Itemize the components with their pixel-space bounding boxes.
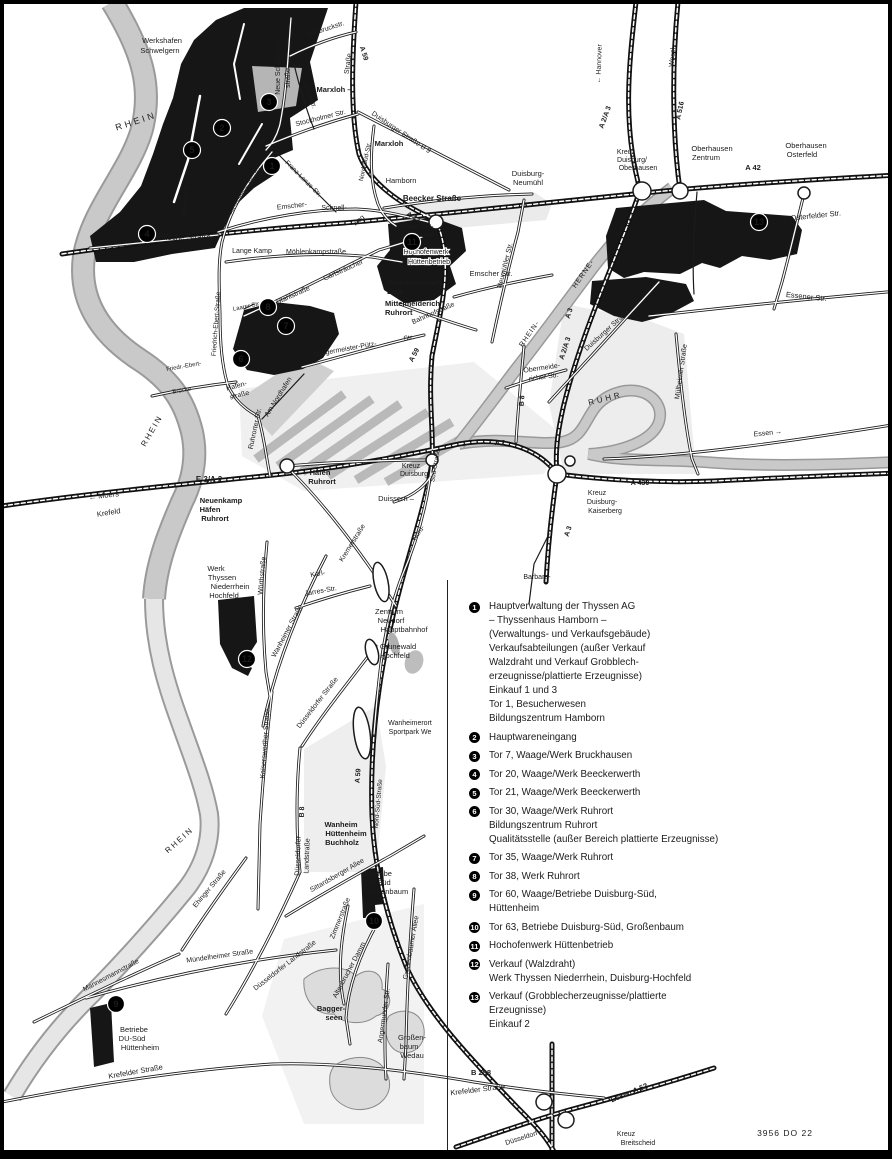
- legend-item-text: Verkauf (Walzdraht)Werk Thyssen Niederrh…: [489, 958, 691, 986]
- legend-line: Hauptwareneingang: [489, 731, 577, 745]
- map-marker-10[interactable]: 10: [366, 913, 383, 930]
- map-label: Wanheimer Straße: [271, 604, 305, 659]
- map-label: Hüttenheim: [325, 829, 367, 838]
- works-huettenheim: [90, 1003, 114, 1067]
- legend-item-text: Tor 7, Waage/Werk Bruckhausen: [489, 749, 632, 763]
- map-label: Thyssen: [208, 573, 236, 582]
- legend-line: Tor 38, Werk Ruhrort: [489, 870, 580, 884]
- map-label: Schnell-: [321, 205, 347, 212]
- map-label: Hoffsche Straße: [153, 233, 211, 242]
- map-label: Gartsträucher: [322, 258, 365, 282]
- legend-line: Hüttenheim: [489, 902, 657, 916]
- map-label: Kreuz: [617, 1131, 636, 1138]
- map-label: Osterfelder Str.: [790, 208, 841, 222]
- map-label: A 42: [745, 163, 761, 172]
- legend-bullet: 8: [469, 871, 480, 882]
- map-label: RHEIN: [163, 825, 195, 855]
- map-label: B 8: [519, 395, 527, 407]
- map-label: Schwelgern: [140, 46, 179, 55]
- legend-item-text: Tor 63, Betriebe Duisburg-Süd, Großenbau…: [489, 921, 684, 935]
- map-marker-7[interactable]: 7: [278, 318, 295, 335]
- legend-line: Einkauf 2: [489, 1018, 667, 1032]
- map-label: Oberhausen: [785, 141, 826, 150]
- legend-line: Tor 1, Besucherwesen: [489, 698, 650, 712]
- map-marker-13[interactable]: 13: [751, 214, 768, 231]
- legend-line: Tor 20, Waage/Werk Beeckerwerth: [489, 768, 640, 782]
- map-label: RHEIN: [139, 413, 164, 448]
- map-marker-4[interactable]: 4: [139, 226, 156, 243]
- map-label: Untermeiderich: [387, 278, 442, 287]
- legend-bullet: 5: [469, 788, 480, 799]
- map-label: Franz-Lenze-Str.: [283, 159, 322, 198]
- map-label: Hamborn: [386, 176, 417, 185]
- legend-line: Walzdraht und Verkauf Grobblech-: [489, 656, 650, 670]
- map-label: Zentrum: [692, 153, 720, 162]
- map-label: Düsseldorf: [505, 1130, 539, 1147]
- legend-line: Qualitätsstelle (außer Bereich plattiert…: [489, 833, 718, 847]
- map-label: A 516: [675, 101, 686, 121]
- map-label: Stahlstraße: [276, 285, 312, 306]
- map-label: Ruhrort: [201, 514, 229, 523]
- map-label: Duisburg/: [617, 157, 647, 164]
- legend-line: – Thyssenhaus Hamborn –: [489, 614, 650, 628]
- map-label: Duissern –: [378, 494, 415, 503]
- map-label: Lange Kamp: [232, 248, 272, 255]
- map-marker-1[interactable]: 1: [264, 158, 281, 175]
- legend-line: Bildungszentrum Ruhrort: [489, 819, 718, 833]
- map-label: 3956 DO 22: [757, 1128, 813, 1138]
- legend-item-8: 8Tor 38, Werk Ruhrort: [469, 870, 884, 884]
- map-label: Wörthstraße: [257, 556, 267, 595]
- map-label: seen: [325, 1013, 343, 1022]
- map-label: A 3: [564, 525, 574, 537]
- map-label: Hüttenbetrieb: [408, 259, 450, 266]
- legend-item-13: 13Verkauf (Grobblecherzeugnisse/plattier…: [469, 990, 884, 1032]
- map-label: Krefelder Straße: [450, 1082, 506, 1098]
- map-label: Niederrhein: [211, 582, 250, 591]
- map-label: A 430: [631, 480, 650, 487]
- map-label: Werk: [207, 564, 225, 573]
- map-label: A 2: [495, 440, 506, 447]
- map-label: Oberhausen: [619, 165, 658, 172]
- map-label: Kreuz: [588, 490, 607, 497]
- legend-bullet: 7: [469, 853, 480, 864]
- map-label: ← Moers: [88, 489, 120, 502]
- map-label: Werkshafen: [142, 36, 182, 45]
- map-label: Wanheimerort: [388, 720, 432, 727]
- map-label: Möhlenkampstraße: [286, 249, 346, 256]
- marker-number: 8: [265, 302, 270, 312]
- map-label: Betriebe: [120, 1025, 148, 1034]
- legend-item-text: Tor 35, Waage/Werk Ruhrort: [489, 851, 613, 865]
- map-label: Marxloh: [375, 139, 404, 148]
- map-label: A 59: [358, 46, 369, 62]
- legend-bullet: 1: [469, 602, 480, 613]
- legend-item-3: 3Tor 7, Waage/Werk Bruckhausen: [469, 749, 884, 763]
- legend-bullet: 10: [469, 922, 480, 933]
- legend-bullet: 11: [469, 941, 480, 952]
- map-label: Duisburg-: [512, 169, 545, 178]
- legend-bullet: 13: [469, 992, 480, 1003]
- works-oberhausen-1: [606, 200, 802, 278]
- legend-bullet: 4: [469, 769, 480, 780]
- map-label: Friedr.-Ebert-: [166, 361, 202, 373]
- map-label: Neudorf: [378, 616, 406, 625]
- map-label: Großenbaum: [364, 887, 408, 896]
- map-label: Nord-: [411, 524, 426, 541]
- legend-line: erzeugnisse/plattierte Erzeugnisse): [489, 670, 650, 684]
- legend-line: Tor 63, Betriebe Duisburg-Süd, Großenbau…: [489, 921, 684, 935]
- map-label: Wedau: [400, 1051, 424, 1060]
- marker-number: 2: [219, 123, 224, 133]
- map-label: weg: [351, 214, 366, 228]
- marker-number: 9: [113, 999, 118, 1009]
- map-label: Ruhrort: [385, 308, 413, 317]
- map-label: Zentrum: [375, 607, 403, 616]
- legend-line: Tor 35, Waage/Werk Ruhrort: [489, 851, 613, 865]
- legend-item-text: Tor 30, Waage/Werk RuhrortBildungszentru…: [489, 805, 718, 847]
- legend-line: (Verwaltungs- und Verkaufsgebäude): [489, 628, 650, 642]
- legend-line: Werk Thyssen Niederrhein, Duisburg-Hochf…: [489, 972, 691, 986]
- legend-line: Hochofenwerk Hüttenbetrieb: [489, 939, 613, 953]
- map-label: Beecker Straße: [403, 194, 462, 203]
- map-label: Kaiserswerther Straße: [260, 709, 272, 779]
- map-label: Krefeld: [96, 506, 121, 519]
- legend-item-1: 1Hauptverwaltung der Thyssen AG– Thyssen…: [469, 600, 884, 726]
- legend-item-text: Tor 38, Werk Ruhrort: [489, 870, 580, 884]
- map-label: Häfen: [200, 505, 221, 514]
- legend-item-7: 7Tor 35, Waage/Werk Ruhrort: [469, 851, 884, 865]
- legend-bullet: 12: [469, 959, 480, 970]
- map-label: Marxloh –: [316, 85, 351, 94]
- map-marker-6[interactable]: 6: [233, 351, 250, 368]
- map-label: Düsseldorfer: [294, 835, 302, 876]
- map-label: DU-Süd: [364, 878, 391, 887]
- legend-item-9: 9Tor 60, Waage/Betriebe Duisburg-Süd,Hüt…: [469, 888, 884, 916]
- legend-item-text: Tor 21, Waage/Werk Beeckerwerth: [489, 786, 640, 800]
- legend-item-12: 12Verkauf (Walzdraht)Werk Thyssen Nieder…: [469, 958, 884, 986]
- map-label: Häfen: [310, 468, 331, 477]
- map-label: A 59: [354, 768, 362, 783]
- legend-line: Bildungszentrum Hamborn: [489, 712, 650, 726]
- map-label: E 3/A 2: [196, 475, 223, 484]
- map-label: Grunewald: [380, 642, 416, 651]
- map-label: Neue Schwelgern-: [275, 37, 282, 95]
- map-marker-9[interactable]: 9: [108, 996, 125, 1013]
- legend-line: Hauptverwaltung der Thyssen AG: [489, 600, 650, 614]
- map-label: B 8: [299, 806, 306, 817]
- marker-number: 1: [269, 161, 274, 171]
- legend-bullet: 6: [469, 806, 480, 817]
- legend-line: Tor 21, Waage/Werk Beeckerwerth: [489, 786, 640, 800]
- map-label: Neuenkamp: [200, 496, 243, 505]
- map-label: Duisburger Straße B 9: [370, 110, 432, 155]
- legend-line: Tor 60, Waage/Betriebe Duisburg-Süd,: [489, 888, 657, 902]
- marker-number: 5: [189, 145, 194, 155]
- map-label: Neumühl: [513, 178, 543, 187]
- map-label: Wanheim: [324, 820, 357, 829]
- legend-item-text: Tor 20, Waage/Werk Beeckerwerth: [489, 768, 640, 782]
- map-marker-5[interactable]: 5: [184, 142, 201, 159]
- map-label: Landstraße: [303, 838, 311, 874]
- legend: 1Hauptverwaltung der Thyssen AG– Thyssen…: [469, 600, 884, 1037]
- legend-line: Erzeugnisse): [489, 1004, 667, 1018]
- map-label: B 288: [471, 1068, 491, 1077]
- map-marker-2[interactable]: 2: [214, 120, 231, 137]
- map-marker-12[interactable]: 12: [239, 651, 256, 668]
- map-label: Sportpark We: [389, 729, 432, 736]
- legend-line: Verkaufsabteilungen (außer Verkauf: [489, 642, 650, 656]
- map-label: Breitscheid: [621, 1140, 656, 1147]
- map-label: Kaiserberg: [588, 508, 622, 515]
- map-label: Hochfeld: [209, 591, 239, 600]
- legend-line: Verkauf (Walzdraht): [489, 958, 691, 972]
- marker-number: 6: [238, 354, 243, 364]
- map-label: A 2/A 3: [598, 105, 613, 129]
- legend-item-text: Hauptwareneingang: [489, 731, 577, 745]
- marker-number: 12: [242, 654, 252, 664]
- map-label: Essen →: [753, 429, 782, 439]
- marker-number: 13: [754, 217, 764, 227]
- legend-item-6: 6Tor 30, Waage/Werk RuhrortBildungszentr…: [469, 805, 884, 847]
- map-label: Essen A 52: [609, 1081, 649, 1104]
- legend-item-text: Verkauf (Grobblecherzeugnisse/plattierte…: [489, 990, 667, 1032]
- map-label: Kreuz: [617, 149, 636, 156]
- map-label: Karl-: [310, 570, 326, 580]
- legend-bullet: 3: [469, 751, 480, 762]
- legend-item-text: Hochofenwerk Hüttenbetrieb: [489, 939, 613, 953]
- map-label: baum: [400, 1042, 419, 1051]
- legend-bullet: 9: [469, 890, 480, 901]
- map-label: Str.: [403, 334, 415, 343]
- map-label: Ruhrort: [308, 477, 336, 486]
- map-label: Hochfeld: [380, 651, 410, 660]
- map-label: DU-Süd: [119, 1034, 146, 1043]
- marker-number: 7: [283, 321, 288, 331]
- legend-divider: [447, 580, 448, 1151]
- legend-line: Tor 30, Waage/Werk Ruhrort: [489, 805, 718, 819]
- legend-bullet: 2: [469, 732, 480, 743]
- map-label: Hauptbahnhof: [380, 625, 428, 634]
- legend-item-text: Tor 60, Waage/Betriebe Duisburg-Süd,Hütt…: [489, 888, 657, 916]
- map-sheet: WerkshafenSchwelgernRHEINWarbruckstr.Neu…: [0, 0, 892, 1159]
- map-label: Osterfeld: [787, 150, 817, 159]
- marker-number: 3: [266, 97, 271, 107]
- legend-item-text: Hauptverwaltung der Thyssen AG– Thyssenh…: [489, 600, 650, 726]
- map-label: Duisburg: [400, 471, 428, 478]
- legend-item-11: 11Hochofenwerk Hüttenbetrieb: [469, 939, 884, 953]
- marker-number: 10: [369, 916, 379, 926]
- map-label: A 59: [408, 347, 421, 363]
- legend-item-4: 4Tor 20, Waage/Werk Beeckerwerth: [469, 768, 884, 782]
- legend-item-2: 2Hauptwareneingang: [469, 731, 884, 745]
- map-label: Hüttenheim: [121, 1043, 159, 1052]
- legend-item-10: 10Tor 63, Betriebe Duisburg-Süd, Großenb…: [469, 921, 884, 935]
- map-marker-3[interactable]: 3: [261, 94, 278, 111]
- legend-line: Verkauf (Grobblecherzeugnisse/plattierte: [489, 990, 667, 1004]
- legend-line: Tor 7, Waage/Werk Bruckhausen: [489, 749, 632, 763]
- legend-item-5: 5Tor 21, Waage/Werk Beeckerwerth: [469, 786, 884, 800]
- map-label: straße: [285, 68, 292, 88]
- map-label: Betriebe: [364, 869, 392, 878]
- map-label: Duisburg-: [587, 499, 618, 506]
- map-label: Barbara-: [523, 574, 551, 581]
- map-label: Emscher-: [277, 201, 308, 211]
- map-marker-8[interactable]: 8: [260, 299, 277, 316]
- map-label: Oberhausen: [691, 144, 732, 153]
- marker-number: 4: [144, 229, 149, 239]
- map-label: Buchholz: [325, 838, 359, 847]
- map-label: Großen-: [398, 1033, 426, 1042]
- legend-line: Einkauf 1 und 3: [489, 684, 650, 698]
- map-label: Mittelmeiderich: [385, 299, 440, 308]
- map-label: Laar: [387, 287, 403, 296]
- map-label: Kreuz: [402, 463, 421, 470]
- marker-number: 11: [407, 237, 417, 247]
- map-label: Bagger-: [317, 1004, 346, 1013]
- map-label: ← Hannover: [595, 44, 603, 84]
- map-label: Kreuz DU-: [401, 224, 434, 231]
- map-marker-11[interactable]: 11: [404, 234, 421, 251]
